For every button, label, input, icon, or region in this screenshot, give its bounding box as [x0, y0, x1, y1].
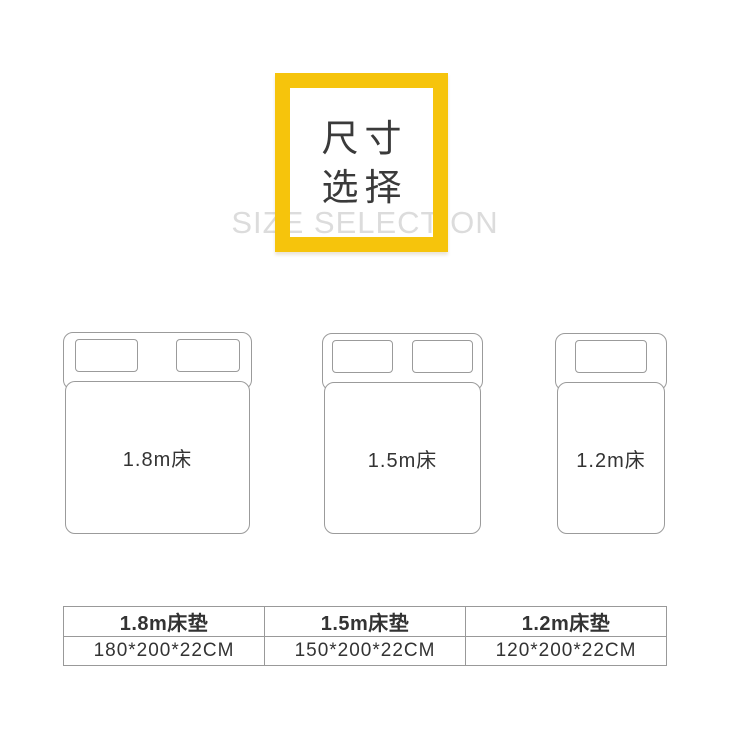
- bed-label: 1.8m床: [123, 443, 192, 472]
- bed-label: 1.2m床: [576, 444, 645, 473]
- size-selection-poster: SIZE SELECTION 尺寸 选择 1.8m床 1.5m床 1.2m: [0, 0, 730, 730]
- pillow: [176, 339, 240, 372]
- size-table-name-row: 1.8m床垫 1.5m床垫 1.2m床垫: [64, 607, 667, 637]
- pillow: [332, 340, 393, 373]
- page-title-line2: 选择: [322, 163, 408, 212]
- mattress-size-cell: 180*200*22CM: [64, 637, 265, 666]
- size-table-dimension-row: 180*200*22CM 150*200*22CM 120*200*22CM: [64, 637, 667, 666]
- pillow: [412, 340, 473, 373]
- mattress: 1.5m床: [324, 382, 481, 534]
- mattress-name-cell: 1.8m床垫: [64, 607, 265, 637]
- page-title: 尺寸 选择: [316, 114, 408, 212]
- mattress: 1.2m床: [557, 382, 665, 534]
- page-title-line1: 尺寸: [322, 114, 408, 163]
- mattress: 1.8m床: [65, 381, 250, 534]
- mattress-name-cell: 1.5m床垫: [265, 607, 466, 637]
- bed-diagram-1-2m: 1.2m床: [555, 333, 667, 534]
- pillow: [75, 339, 138, 372]
- mattress-size-cell: 120*200*22CM: [466, 637, 667, 666]
- pillow: [575, 340, 647, 373]
- size-table: 1.8m床垫 1.5m床垫 1.2m床垫 180*200*22CM 150*20…: [63, 606, 667, 666]
- title-frame: 尺寸 选择: [275, 73, 448, 252]
- bed-diagram-1-8m: 1.8m床: [63, 332, 252, 534]
- mattress-size-cell: 150*200*22CM: [265, 637, 466, 666]
- mattress-name-cell: 1.2m床垫: [466, 607, 667, 637]
- bed-label: 1.5m床: [368, 444, 437, 473]
- bed-diagram-1-5m: 1.5m床: [322, 333, 483, 534]
